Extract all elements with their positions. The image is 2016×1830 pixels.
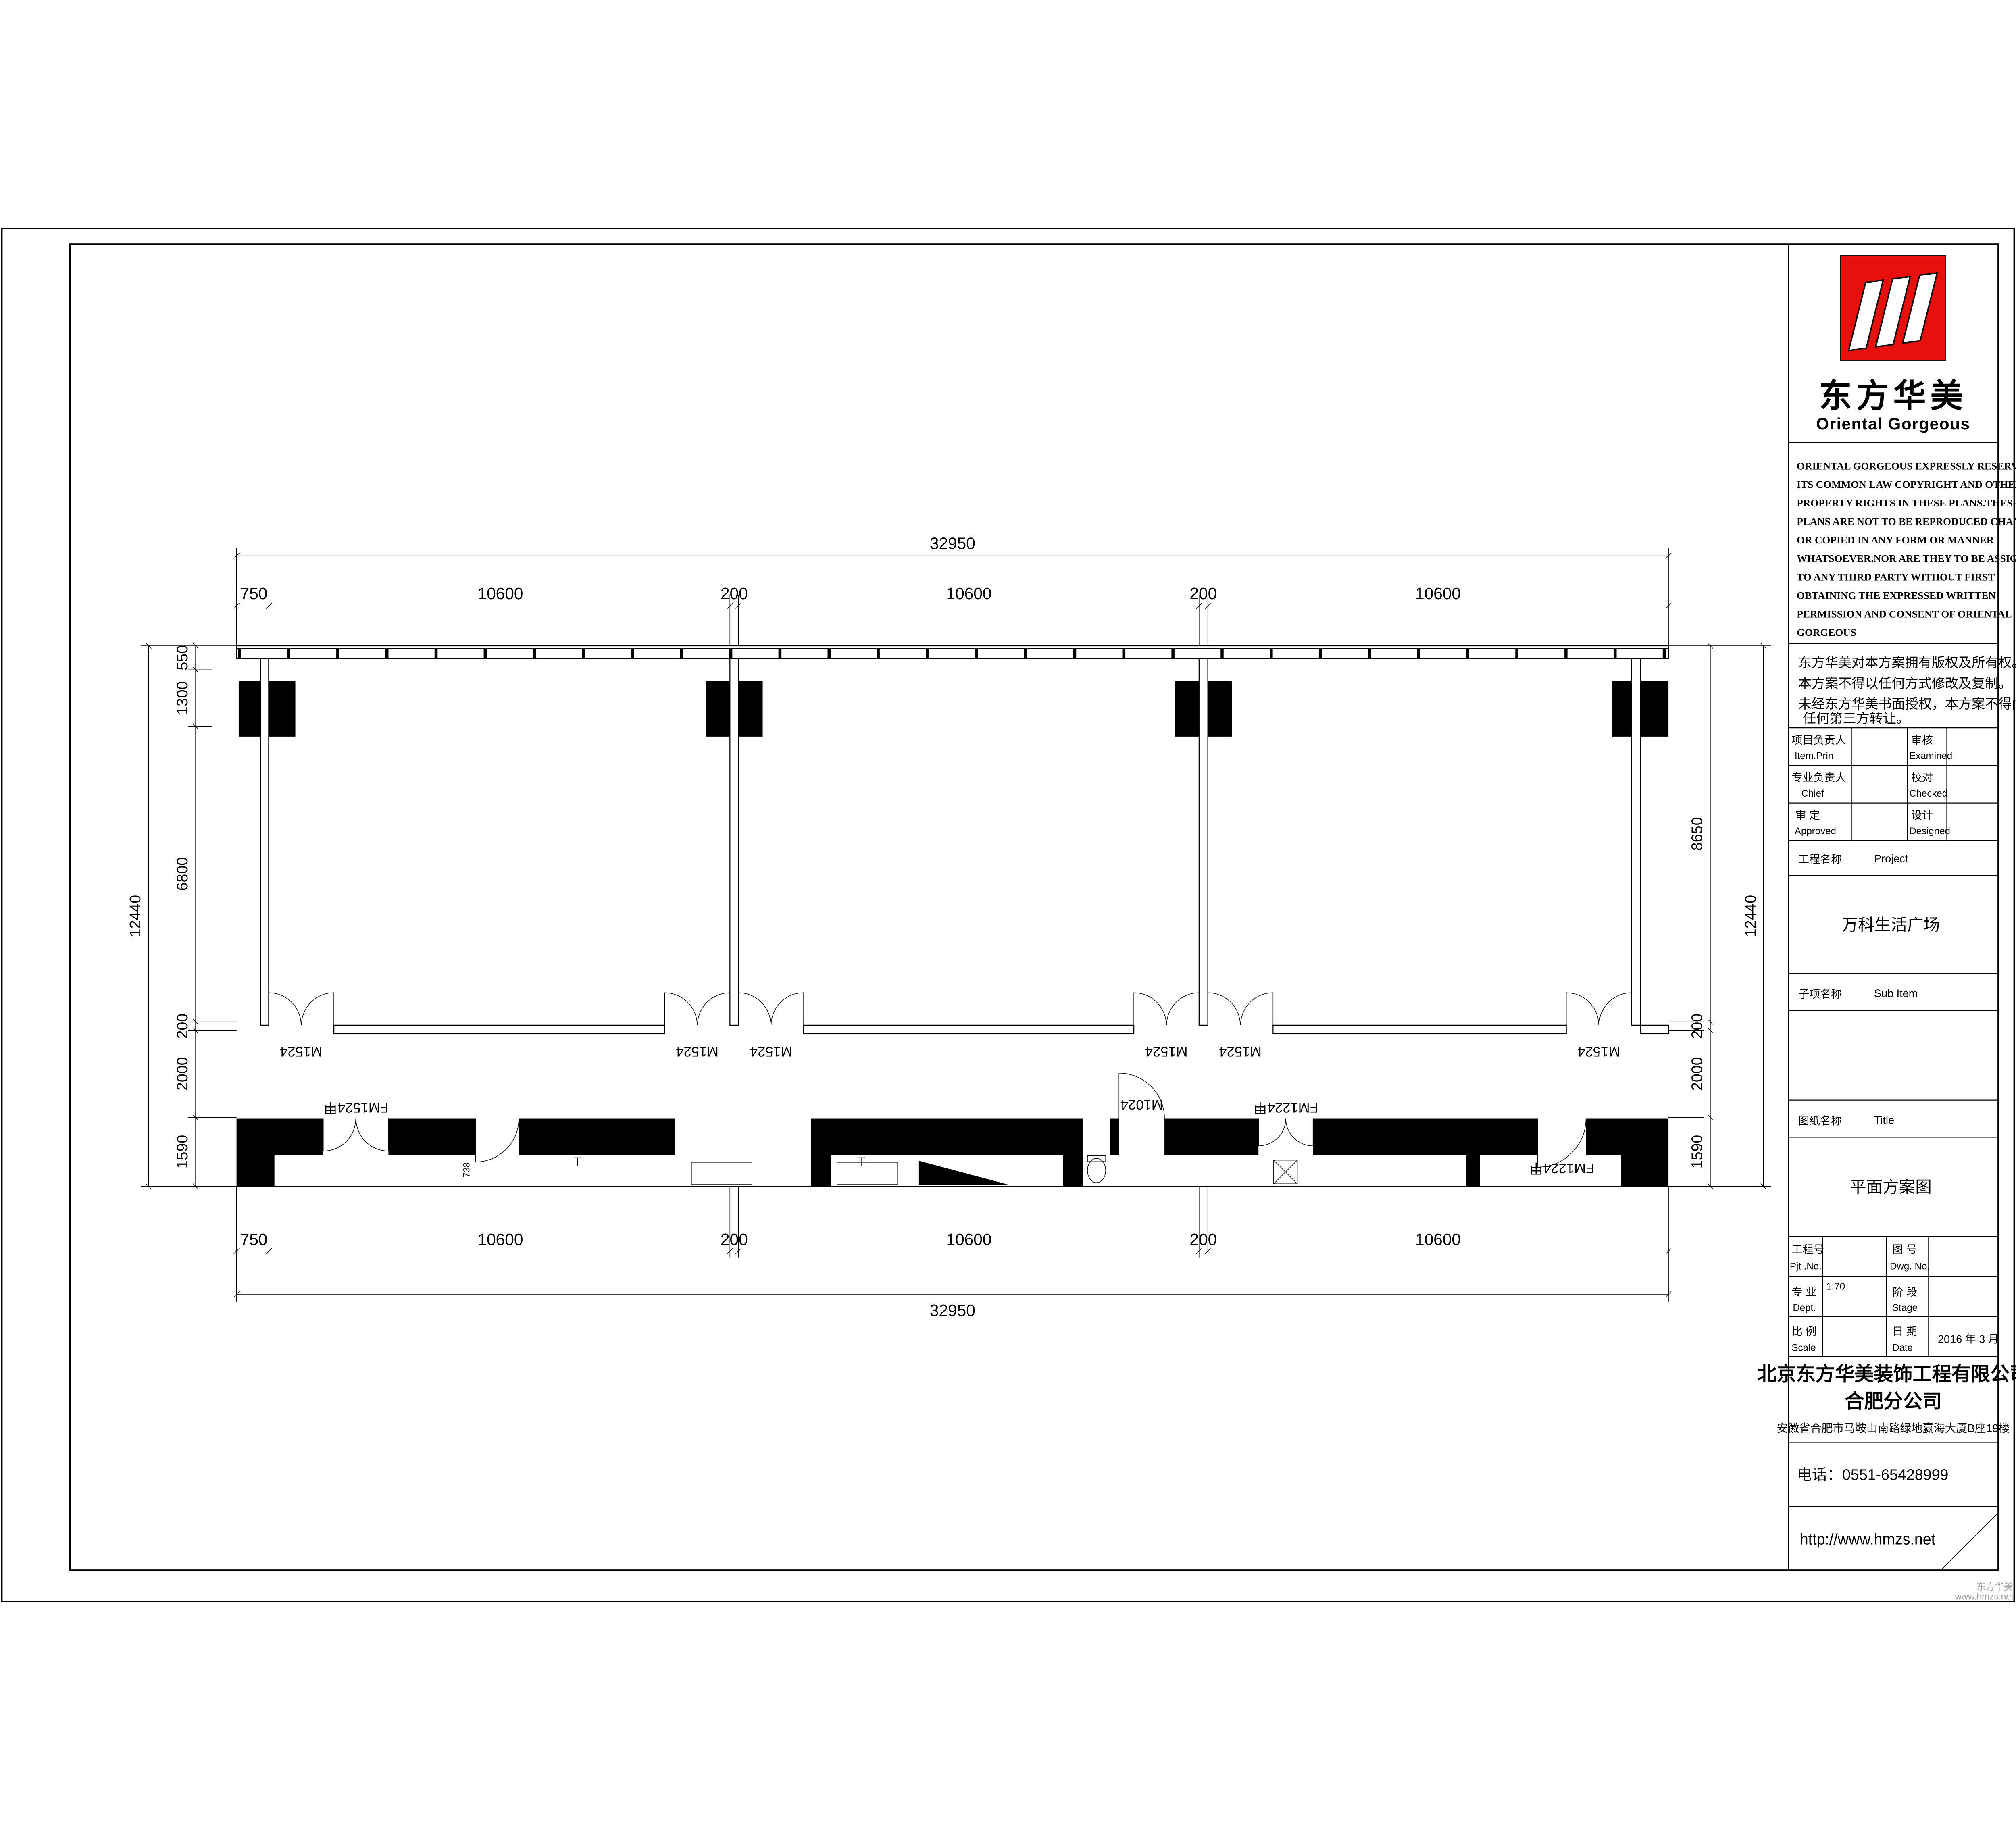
wall-black-segment xyxy=(1466,1155,1480,1186)
company-phone: 电话：0551-65428999 xyxy=(1797,1466,1948,1483)
copyright-line: 本方案不得以任何方式修改及复制。 xyxy=(1798,676,2012,691)
copyright-line: TO ANY THIRD PARTY WITHOUT FIRST xyxy=(1797,571,1995,583)
company-branch: 合肥分公司 xyxy=(1845,1391,1942,1412)
cell-label: Dwg. No. xyxy=(1890,1261,1930,1272)
cell-label: Designed xyxy=(1909,826,1950,837)
curtain-wall xyxy=(237,646,1668,659)
company-website: http://www.hmzs.net xyxy=(1800,1530,1936,1547)
logo-name-cn: 东方华美 xyxy=(1819,378,1967,414)
wall-black-segment xyxy=(1063,1155,1083,1186)
cell-label: 日 期 xyxy=(1892,1325,1917,1338)
cell-label: 工程号 xyxy=(1791,1243,1824,1255)
copyright-line: ORIENTAL GORGEOUS EXPRESSLY RESERVES xyxy=(1797,460,2016,472)
dim-text: 200 xyxy=(1189,584,1217,603)
field-label: 工程名称 xyxy=(1798,853,1842,866)
right-wall xyxy=(1631,659,1640,1025)
wall-black-segment xyxy=(1110,1119,1119,1155)
wall-black-segment xyxy=(388,1119,475,1155)
dim-text: 1590 xyxy=(174,1135,191,1169)
field-label: 图纸名称 xyxy=(1798,1115,1842,1127)
drawing-sheet: 32950 750 10600 200 10600 200 10600 750 … xyxy=(0,0,2016,1830)
dim-text: 12440 xyxy=(127,895,144,937)
door-label: FM1024甲 xyxy=(549,1130,614,1146)
wall-segment xyxy=(1640,1025,1668,1034)
sheet-frame xyxy=(2,229,2014,1601)
dim-text: 10600 xyxy=(478,584,523,603)
dim-text: 10600 xyxy=(1415,1230,1461,1249)
cell-label: Approved xyxy=(1795,826,1836,837)
door-label: M1524 xyxy=(1145,1044,1188,1059)
dim-text: 32950 xyxy=(930,534,975,552)
logo-name-en: Oriental Gorgeous xyxy=(1816,414,1970,433)
door-label: FM1224甲 xyxy=(1253,1100,1318,1115)
cell-label: 设计 xyxy=(1911,809,1933,821)
wall-black-segment xyxy=(1164,1119,1258,1155)
dim-text: 10600 xyxy=(946,584,992,603)
cell-label: 审 定 xyxy=(1795,809,1820,821)
cell-label: 阶 段 xyxy=(1892,1286,1917,1298)
dim-text: 200 xyxy=(174,1014,191,1039)
door-label: FM1224甲 xyxy=(1529,1161,1594,1176)
dim-text: 10600 xyxy=(1415,584,1461,603)
outer-border xyxy=(2,229,2014,1601)
cell-label: Checked xyxy=(1909,788,1947,799)
cell-label: Chief xyxy=(1801,788,1824,799)
cell-label: Item.Prin xyxy=(1795,751,1833,762)
cell-label: 校对 xyxy=(1911,771,1933,784)
company-name: 北京东方华美装饰工程有限公司 xyxy=(1758,1363,2016,1385)
wall-segment xyxy=(1273,1025,1566,1034)
left-wall xyxy=(260,659,269,1025)
partition-wall xyxy=(730,659,738,1025)
wall-black-segment xyxy=(1621,1155,1668,1186)
copyright-line: WHATSOEVER.NOR ARE THEY TO BE ASSIGHED xyxy=(1797,553,2016,564)
door-label: M1024 xyxy=(1120,1097,1163,1112)
wall-black-segment xyxy=(237,1155,275,1186)
cell-label: Stage xyxy=(1892,1302,1918,1313)
dim-text: 8650 xyxy=(1689,817,1706,851)
cell-label: Scale xyxy=(1791,1343,1816,1353)
dim-text: 2000 xyxy=(1689,1057,1706,1091)
cell-label: 专业负责人 xyxy=(1791,771,1846,784)
cell-label: 专 业 xyxy=(1791,1286,1816,1298)
dim-text: 1590 xyxy=(1689,1135,1706,1169)
copyright-line: PROPERTY RIGHTS IN THESE PLANS.THESE xyxy=(1797,497,2016,509)
wall-black-segment xyxy=(237,1119,323,1155)
dim-text: 1300 xyxy=(174,681,191,715)
drawing-title-name: 平面方案图 xyxy=(1850,1178,1932,1196)
door-label: M1524 xyxy=(1219,1044,1262,1059)
dim-text: 32950 xyxy=(930,1301,975,1320)
copyright-line: PERMISSION AND CONSENT OF ORIENTAL xyxy=(1797,608,2012,620)
watermark-name: 东方华美 xyxy=(1976,1582,2013,1592)
watermark-url: www.hmzs.net xyxy=(1955,1591,2014,1601)
wall-segment xyxy=(334,1025,665,1034)
wall-black-segment xyxy=(1313,1119,1538,1155)
copyright-line: PLANS ARE NOT TO BE REPRODUCED CHANGED xyxy=(1797,516,2016,527)
field-label: 子项名称 xyxy=(1798,988,1842,1000)
dim-text: 200 xyxy=(721,584,748,603)
copyright-line: GORGEOUS xyxy=(1797,627,1856,638)
door-label: M1524 xyxy=(280,1044,323,1059)
field-label: Project xyxy=(1874,852,1908,864)
partition-wall xyxy=(1199,659,1208,1025)
wall-black-segment xyxy=(811,1155,831,1186)
dim-text: 10600 xyxy=(946,1230,992,1249)
cell-value: 2016 年 3 月 xyxy=(1938,1332,1999,1345)
door-label: M1524 xyxy=(1577,1044,1620,1059)
copyright-line: 未经东方华美书面授权，本方案不得向 xyxy=(1798,697,2016,712)
field-label: Title xyxy=(1874,1114,1894,1126)
dim-text: 750 xyxy=(240,584,268,603)
dim-text: 10600 xyxy=(478,1230,523,1249)
copyright-line: OR COPIED IN ANY FORM OR MANNER xyxy=(1797,534,1994,546)
middle-wall xyxy=(334,1025,1668,1034)
company-address: 安徽省合肥市马鞍山南路绿地赢海大厦B座19楼 xyxy=(1776,1422,2010,1434)
wall-segment xyxy=(804,1025,1134,1034)
cell-label: 审核 xyxy=(1911,734,1933,746)
door-label: M1524 xyxy=(750,1044,793,1059)
cell-label: Dept. xyxy=(1793,1302,1816,1313)
door-label: M1524 xyxy=(676,1044,719,1059)
curtain-wall-band xyxy=(237,646,1668,659)
dim-text: 750 xyxy=(240,1230,268,1249)
cell-label: 比 例 xyxy=(1791,1325,1816,1338)
copyright-line: 任何第三方转让。 xyxy=(1803,711,1910,726)
copyright-line: ITS COMMON LAW COPYRIGHT AND OTHER xyxy=(1797,479,2016,490)
cell-label: Examined xyxy=(1909,751,1952,762)
cell-label: Date xyxy=(1892,1343,1913,1353)
cell-label: Pjt .No. xyxy=(1790,1261,1822,1272)
dim-text: 6800 xyxy=(174,857,191,891)
cell-label: 项目负责人 xyxy=(1791,734,1846,746)
copyright-line: 东方华美对本方案拥有版权及所有权。 xyxy=(1798,656,2016,670)
cell-value: 1:70 xyxy=(1826,1281,1845,1292)
wall-black-segment xyxy=(811,1119,1083,1155)
wall-black-segment xyxy=(1586,1119,1669,1155)
dim-text: 550 xyxy=(174,645,191,670)
field-label: Sub Item xyxy=(1874,987,1918,999)
project-name: 万科生活广场 xyxy=(1842,915,1940,934)
copyright-line: OBTAINING THE EXPRESSED WRITTEN xyxy=(1797,589,1996,601)
dim-text: 200 xyxy=(1189,1230,1217,1249)
dim-text: 2000 xyxy=(174,1057,191,1091)
door-label: FM1524甲 xyxy=(323,1100,388,1115)
cell-label: 图 号 xyxy=(1892,1243,1917,1255)
dim-text: 200 xyxy=(721,1230,748,1249)
dim-text: 200 xyxy=(1689,1014,1706,1039)
dim-text: 738 xyxy=(461,1162,471,1178)
dim-text: 12440 xyxy=(1742,895,1759,937)
